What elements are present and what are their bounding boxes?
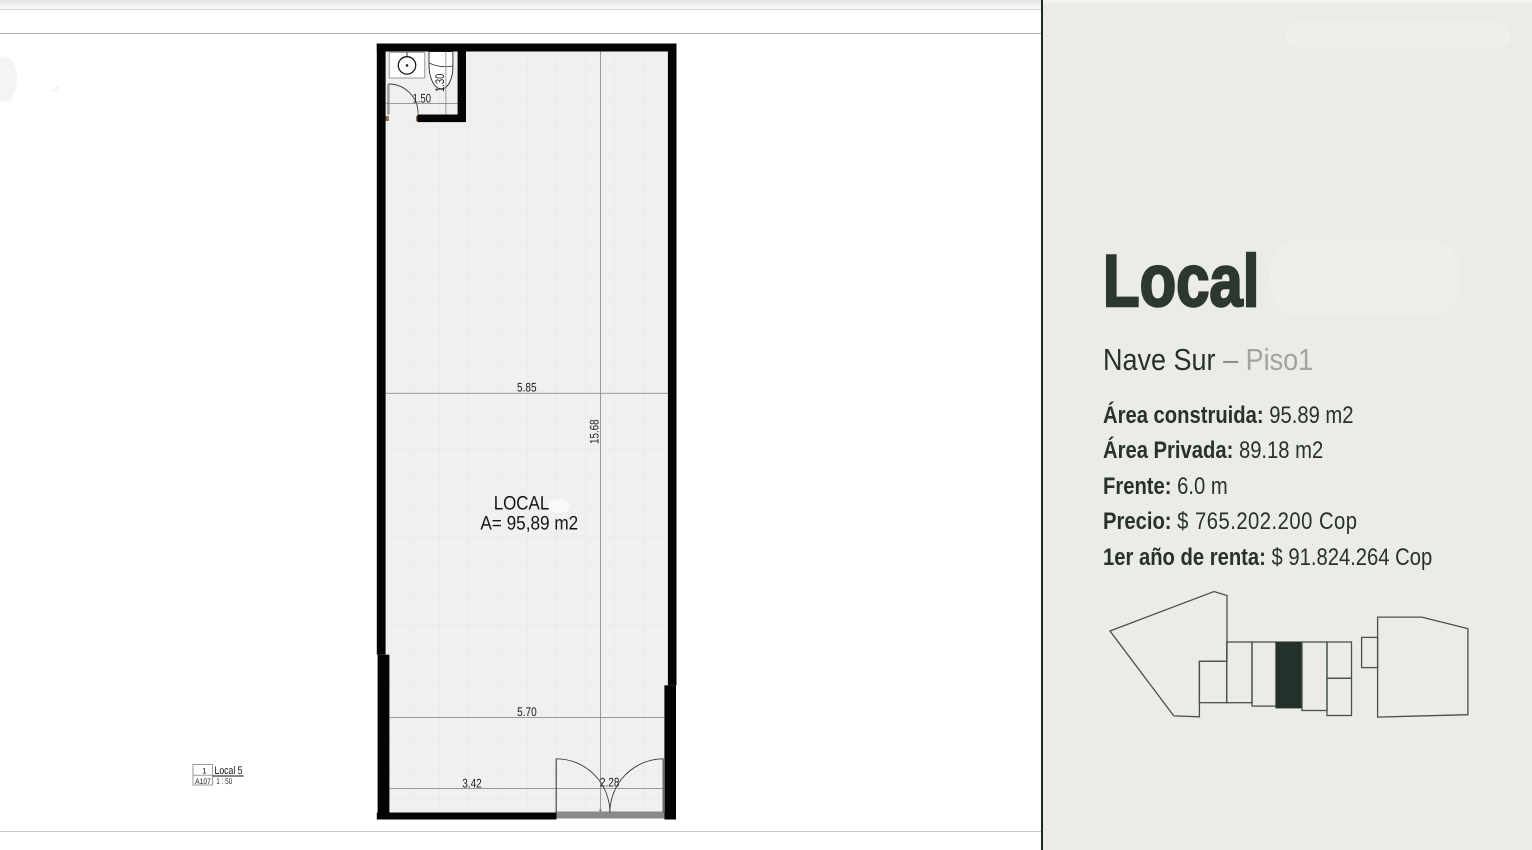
svg-text:1.30: 1.30 xyxy=(433,74,447,92)
svg-text:A= 95,89 m2: A= 95,89 m2 xyxy=(480,512,578,534)
svg-text:5.70: 5.70 xyxy=(517,705,537,719)
svg-text:1: 1 xyxy=(202,766,207,775)
svg-text:3.42: 3.42 xyxy=(462,776,482,790)
svg-text:A107: A107 xyxy=(195,777,211,786)
svg-text:1.50: 1.50 xyxy=(413,91,431,105)
svg-text:5.85: 5.85 xyxy=(517,380,537,394)
svg-text:1 : 50: 1 : 50 xyxy=(216,776,232,786)
svg-text:15.68: 15.68 xyxy=(588,419,602,444)
